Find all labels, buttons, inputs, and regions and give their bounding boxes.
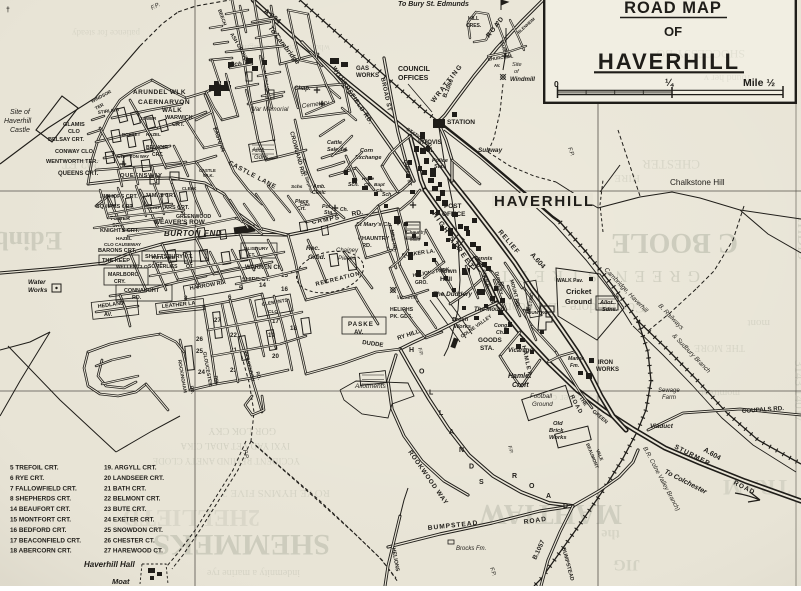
svg-text:Ch.: Ch. bbox=[364, 182, 372, 188]
svg-text:Allot.: Allot. bbox=[599, 300, 614, 306]
svg-text:To Bury St. Edmunds: To Bury St. Edmunds bbox=[398, 1, 469, 8]
svg-text:Ground: Ground bbox=[565, 297, 592, 306]
svg-text:CAERNARVON: CAERNARVON bbox=[138, 99, 190, 106]
svg-text:CONNAUGHT: CONNAUGHT bbox=[124, 288, 160, 294]
svg-text:GOR LOK CKY: GOR LOK CKY bbox=[208, 425, 276, 436]
svg-text:Castle: Castle bbox=[10, 127, 30, 134]
svg-text:War Memorial: War Memorial bbox=[250, 106, 289, 113]
svg-text:21 BATH CRT.: 21 BATH CRT. bbox=[104, 485, 146, 492]
svg-text:24 EXETER CRT.: 24 EXETER CRT. bbox=[104, 517, 155, 524]
svg-text:WORKS: WORKS bbox=[596, 367, 619, 373]
svg-text:CRES.: CRES. bbox=[466, 23, 482, 29]
svg-text:A: A bbox=[546, 493, 551, 500]
svg-text:Bapt: Bapt bbox=[374, 182, 385, 188]
svg-text:Site: Site bbox=[512, 62, 522, 68]
svg-text:GOODS: GOODS bbox=[478, 337, 503, 344]
svg-text:HAVERHILL: HAVERHILL bbox=[598, 49, 740, 74]
svg-text:TON WAY: TON WAY bbox=[130, 154, 149, 159]
svg-text:ROAD MAP: ROAD MAP bbox=[624, 0, 722, 17]
svg-text:STA.: STA. bbox=[480, 345, 494, 352]
svg-text:WELLEN CLO.: WELLEN CLO. bbox=[116, 264, 149, 270]
svg-text:Croft: Croft bbox=[512, 382, 529, 389]
svg-text:26 CHESTER CT.: 26 CHESTER CT. bbox=[104, 537, 155, 544]
svg-text:L: L bbox=[439, 410, 444, 417]
svg-text:Ground: Ground bbox=[532, 401, 553, 408]
svg-text:Brush: Brush bbox=[452, 317, 469, 323]
svg-text:WALK: WALK bbox=[162, 107, 182, 114]
svg-text:Sch.: Sch. bbox=[348, 182, 359, 188]
svg-text:22 BELMONT CRT.: 22 BELMONT CRT. bbox=[104, 496, 161, 503]
svg-text:Cattle: Cattle bbox=[327, 140, 342, 146]
svg-text:CRT.: CRT. bbox=[172, 122, 185, 128]
svg-text:†: † bbox=[6, 7, 10, 14]
svg-text:L: L bbox=[429, 390, 434, 397]
svg-text:7 FALLOWFIELD CRT.: 7 FALLOWFIELD CRT. bbox=[10, 485, 77, 492]
svg-text:SOMERLIES: SOMERLIES bbox=[148, 264, 178, 270]
svg-text:THE KEEP: THE KEEP bbox=[102, 258, 130, 264]
svg-text:GLAMIS: GLAMIS bbox=[63, 122, 85, 128]
svg-text:WALK Pav.: WALK Pav. bbox=[557, 278, 584, 284]
svg-text:Chauntry: Chauntry bbox=[406, 230, 427, 236]
svg-text:Farm: Farm bbox=[662, 395, 676, 401]
svg-text:WARREN Ct: WARREN Ct bbox=[245, 265, 280, 271]
svg-text:N: N bbox=[459, 447, 464, 454]
svg-text:H: H bbox=[409, 347, 414, 354]
svg-text:23 BUTE CRT.: 23 BUTE CRT. bbox=[104, 506, 146, 513]
svg-text:patience for steady: patience for steady bbox=[72, 28, 140, 38]
svg-text:MARLBORO': MARLBORO' bbox=[108, 272, 140, 278]
svg-text:Sta.: Sta. bbox=[434, 164, 444, 170]
svg-text:Works: Works bbox=[28, 287, 48, 294]
svg-text:HAVERHILL: HAVERHILL bbox=[494, 193, 595, 210]
svg-text:Edinb: Edinb bbox=[0, 226, 62, 255]
svg-text:5: 5 bbox=[239, 285, 243, 292]
svg-text:THE MORE: THE MORE bbox=[694, 342, 745, 353]
svg-text:ROVE HYMNS FIVE 2: ROVE HYMNS FIVE 2 bbox=[222, 487, 330, 499]
svg-text:27 HAREWOOD CT.: 27 HAREWOOD CT. bbox=[104, 548, 163, 555]
svg-text:8 SHEPHERDS CRT.: 8 SHEPHERDS CRT. bbox=[10, 496, 71, 503]
svg-text:18: 18 bbox=[290, 325, 297, 332]
svg-text:Water: Water bbox=[28, 279, 46, 286]
svg-text:Subway: Subway bbox=[478, 147, 503, 154]
svg-text:Hamlet: Hamlet bbox=[508, 373, 532, 380]
svg-text:Works: Works bbox=[549, 435, 567, 441]
svg-text:STATION: STATION bbox=[447, 119, 475, 126]
svg-text:Clea: Clea bbox=[300, 202, 310, 207]
svg-text:Chainey: Chainey bbox=[336, 248, 359, 254]
svg-text:Sdns.: Sdns. bbox=[602, 307, 618, 313]
svg-text:CLERK: CLERK bbox=[182, 186, 196, 191]
svg-text:24: 24 bbox=[198, 369, 205, 376]
svg-text:The Duddery: The Duddery bbox=[433, 291, 473, 298]
svg-text:O: O bbox=[529, 483, 535, 490]
svg-text:Mile ½: Mile ½ bbox=[743, 77, 775, 89]
svg-text:Fm.: Fm. bbox=[570, 363, 579, 369]
svg-text:25: 25 bbox=[196, 348, 203, 355]
svg-text:PASKE: PASKE bbox=[348, 321, 374, 328]
svg-text:Brocks Fm.: Brocks Fm. bbox=[456, 546, 486, 552]
svg-text:Ch.: Ch. bbox=[117, 154, 125, 160]
svg-text:Cricket: Cricket bbox=[566, 287, 592, 296]
svg-text:the: the bbox=[601, 526, 620, 541]
svg-text:6: 6 bbox=[228, 294, 232, 301]
svg-text:AV.: AV. bbox=[104, 312, 113, 318]
svg-text:15 MONTFORT CRT.: 15 MONTFORT CRT. bbox=[10, 517, 71, 524]
svg-text:Windmill: Windmill bbox=[510, 77, 535, 83]
svg-text:A: A bbox=[449, 429, 454, 436]
svg-text:17 BEACONFIELD CRT.: 17 BEACONFIELD CRT. bbox=[10, 537, 81, 544]
svg-text:RD.: RD. bbox=[132, 295, 142, 301]
svg-text:R: R bbox=[512, 473, 517, 480]
svg-text:HELIOHS: HELIOHS bbox=[390, 307, 414, 313]
svg-text:DORSET: DORSET bbox=[122, 132, 141, 137]
svg-text:WARWICK: WARWICK bbox=[165, 115, 193, 121]
svg-text:HIRE: HIRE bbox=[614, 172, 640, 184]
svg-text:JIG: JIG bbox=[613, 556, 640, 573]
svg-text:16: 16 bbox=[281, 286, 288, 293]
svg-text:Site of: Site of bbox=[10, 109, 31, 116]
svg-text:C BOOLE: C BOOLE bbox=[611, 227, 738, 258]
svg-text:Football: Football bbox=[530, 393, 553, 400]
svg-text:HAZEL: HAZEL bbox=[146, 132, 161, 137]
svg-text:8: 8 bbox=[184, 295, 188, 302]
svg-text:20 LANDSEER CRT.: 20 LANDSEER CRT. bbox=[104, 475, 164, 482]
svg-text:indemnity a marine rye: indemnity a marine rye bbox=[206, 567, 300, 578]
svg-text:QUEENS CRT.: QUEENS CRT. bbox=[58, 171, 99, 177]
svg-text:COUNCIL: COUNCIL bbox=[398, 66, 431, 73]
svg-text:Schs: Schs bbox=[291, 184, 303, 190]
svg-text:27: 27 bbox=[214, 317, 221, 324]
svg-text:Pieces: Pieces bbox=[338, 256, 356, 262]
svg-text:AV.: AV. bbox=[354, 329, 364, 336]
svg-text:25 SNOWDON CRT.: 25 SNOWDON CRT. bbox=[104, 527, 163, 534]
svg-text:Ch.: Ch. bbox=[340, 207, 348, 213]
svg-text:Allotments: Allotments bbox=[354, 383, 386, 390]
svg-text:CHAUNTRY: CHAUNTRY bbox=[358, 236, 389, 242]
svg-text:Sch.: Sch. bbox=[382, 192, 393, 198]
svg-text:WORKS: WORKS bbox=[356, 73, 379, 79]
svg-text:19. ARGYLL CRT.: 19. ARGYLL CRT. bbox=[104, 465, 157, 472]
svg-text:16 BEDFORD CRT.: 16 BEDFORD CRT. bbox=[10, 527, 67, 534]
svg-text:CHESTER: CHESTER bbox=[642, 157, 700, 172]
svg-text:20: 20 bbox=[272, 353, 279, 360]
svg-text:BISHOPS CRT.: BISHOPS CRT. bbox=[100, 194, 138, 200]
svg-text:O: O bbox=[419, 368, 425, 375]
svg-text:TOWER: TOWER bbox=[140, 116, 157, 121]
svg-text:IRON: IRON bbox=[598, 360, 613, 366]
svg-text:IYXI YAD VET ADAL CIKA: IYXI YAD VET ADAL CIKA bbox=[180, 441, 290, 451]
svg-text:Manor: Manor bbox=[568, 356, 585, 362]
svg-text:Ch.: Ch. bbox=[496, 330, 504, 336]
svg-text:Old: Old bbox=[553, 421, 563, 427]
svg-text:WENTWORTH TER.: WENTWORTH TER. bbox=[46, 159, 98, 165]
svg-text:6 RYE CRT.: 6 RYE CRT. bbox=[10, 475, 44, 482]
svg-text:Viaduct: Viaduct bbox=[650, 423, 674, 430]
svg-text:OF: OF bbox=[664, 24, 682, 39]
svg-text:BELVOIR: BELVOIR bbox=[146, 145, 168, 151]
svg-text:Sewage: Sewage bbox=[658, 388, 680, 394]
svg-text:Moat: Moat bbox=[112, 577, 130, 586]
svg-text:CLO CAUSEWAY: CLO CAUSEWAY bbox=[104, 242, 141, 247]
svg-text:Gdns.: Gdns. bbox=[254, 155, 270, 161]
svg-text:Cong.: Cong. bbox=[494, 323, 509, 329]
svg-text:Brick: Brick bbox=[549, 428, 564, 434]
svg-text:22: 22 bbox=[230, 332, 237, 339]
svg-text:mont: mont bbox=[747, 317, 770, 329]
svg-text:WLK.: WLK. bbox=[203, 173, 214, 178]
svg-text:YCCIDENT REMIND ANETY CLODE: YCCIDENT REMIND ANETY CLODE bbox=[152, 456, 300, 466]
svg-text:SHEMMEKS: SHEMMEKS bbox=[153, 528, 330, 561]
svg-text:Vicarage: Vicarage bbox=[508, 348, 533, 354]
svg-text:Hope: Hope bbox=[362, 176, 374, 182]
svg-text:5 TREFOIL CRT.: 5 TREFOIL CRT. bbox=[10, 465, 59, 472]
svg-text:HILL: HILL bbox=[468, 16, 479, 22]
svg-text:14: 14 bbox=[259, 282, 266, 289]
svg-text:AV.: AV. bbox=[494, 63, 500, 68]
svg-text:S: S bbox=[479, 479, 484, 486]
svg-text:Chalkstone Hill: Chalkstone Hill bbox=[670, 178, 725, 187]
svg-text:BELSAY CRT.: BELSAY CRT. bbox=[48, 137, 85, 143]
svg-text:Rec.: Rec. bbox=[306, 245, 320, 252]
svg-text:CLO: CLO bbox=[68, 129, 80, 135]
svg-text:D: D bbox=[469, 463, 474, 470]
svg-text:BARONS CRT.: BARONS CRT. bbox=[98, 248, 137, 254]
svg-text:Allot.: Allot. bbox=[251, 148, 265, 154]
svg-text:Haverhill: Haverhill bbox=[4, 118, 32, 125]
svg-text:CONWAY CLO.: CONWAY CLO. bbox=[55, 149, 95, 155]
svg-text:Haverhill Hall: Haverhill Hall bbox=[84, 560, 135, 569]
svg-text:Grnd.: Grnd. bbox=[308, 254, 326, 261]
svg-text:ARUNDEL WLK: ARUNDEL WLK bbox=[133, 89, 186, 96]
svg-text:D: D bbox=[563, 503, 568, 510]
svg-text:Chap.: Chap. bbox=[294, 86, 311, 92]
svg-text:26: 26 bbox=[196, 336, 203, 343]
svg-text:14 BEAUFORT CRT.: 14 BEAUFORT CRT. bbox=[10, 506, 71, 513]
svg-text:18 ABERCORN CRT.: 18 ABERCORN CRT. bbox=[10, 548, 72, 555]
svg-text:OFFICES: OFFICES bbox=[398, 75, 429, 82]
svg-text:POST: POST bbox=[444, 203, 461, 210]
svg-text:CRT.: CRT. bbox=[152, 152, 164, 158]
svg-text:GRO.: GRO. bbox=[415, 280, 428, 286]
svg-text:GAS: GAS bbox=[356, 66, 369, 72]
svg-text:KNIGHTS CRT.: KNIGHTS CRT. bbox=[100, 228, 140, 234]
svg-text:CRY.: CRY. bbox=[114, 279, 126, 285]
svg-text:Tennis: Tennis bbox=[474, 256, 493, 262]
svg-text:19: 19 bbox=[268, 332, 275, 339]
